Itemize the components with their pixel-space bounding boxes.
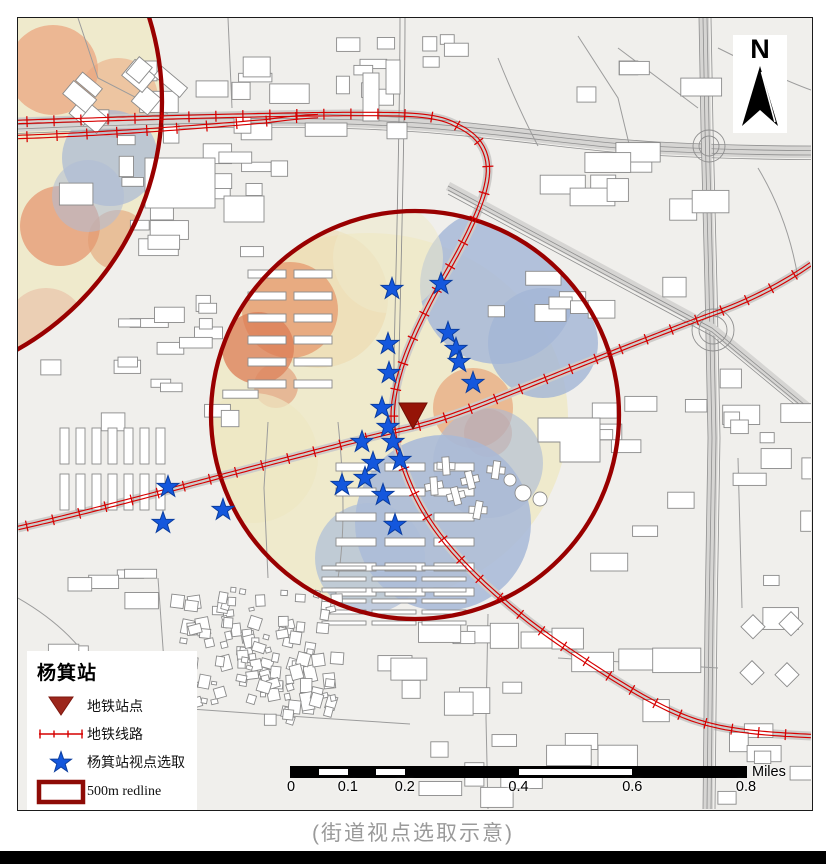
metro-line-icon bbox=[35, 727, 87, 741]
scale-tick-label: 0.2 bbox=[395, 779, 415, 795]
redline-rect-icon bbox=[35, 779, 87, 805]
scale-bar: 0 0.1 0.2 0.4 0.6 0.8 Miles bbox=[290, 766, 747, 778]
scale-segment bbox=[319, 769, 348, 775]
legend-title: 杨箕站 bbox=[37, 658, 197, 685]
scale-tick-label: 0.8 bbox=[736, 779, 756, 795]
legend-item-viewpoints: 杨箕站视点选取 bbox=[35, 748, 197, 776]
scale-segment bbox=[376, 769, 405, 775]
legend-item-label: 500m redline bbox=[87, 784, 161, 800]
legend-item-station: 地铁站点 bbox=[35, 692, 197, 720]
north-arrow: N bbox=[733, 35, 787, 133]
scale-tick-label: 0.4 bbox=[508, 779, 528, 795]
legend-item-label: 杨箕站视点选取 bbox=[87, 752, 185, 772]
bottom-bar bbox=[0, 851, 826, 864]
scale-tick-label: 0.1 bbox=[338, 779, 358, 795]
legend-item-metro-line: 地铁线路 bbox=[35, 720, 197, 748]
scale-unit: Miles bbox=[752, 764, 786, 780]
legend-item-redline: 500m redline bbox=[35, 776, 197, 808]
map-figure: 杨箕站 地铁站点 地铁线路 杨箕站视点选取 bbox=[0, 0, 826, 864]
scale-segment bbox=[519, 769, 633, 775]
legend-item-label: 地铁线路 bbox=[87, 724, 143, 744]
legend-item-label: 地铁站点 bbox=[87, 696, 143, 716]
viewpoint-star-icon bbox=[35, 750, 87, 774]
station-triangle-icon bbox=[35, 695, 87, 717]
legend: 杨箕站 地铁站点 地铁线路 杨箕站视点选取 bbox=[27, 651, 197, 810]
scale-tick-label: 0 bbox=[287, 779, 295, 795]
north-arrow-icon bbox=[733, 64, 787, 130]
north-label: N bbox=[733, 35, 787, 64]
figure-caption: (街道视点选取示意) bbox=[0, 817, 826, 847]
scale-tick-label: 0.6 bbox=[622, 779, 642, 795]
